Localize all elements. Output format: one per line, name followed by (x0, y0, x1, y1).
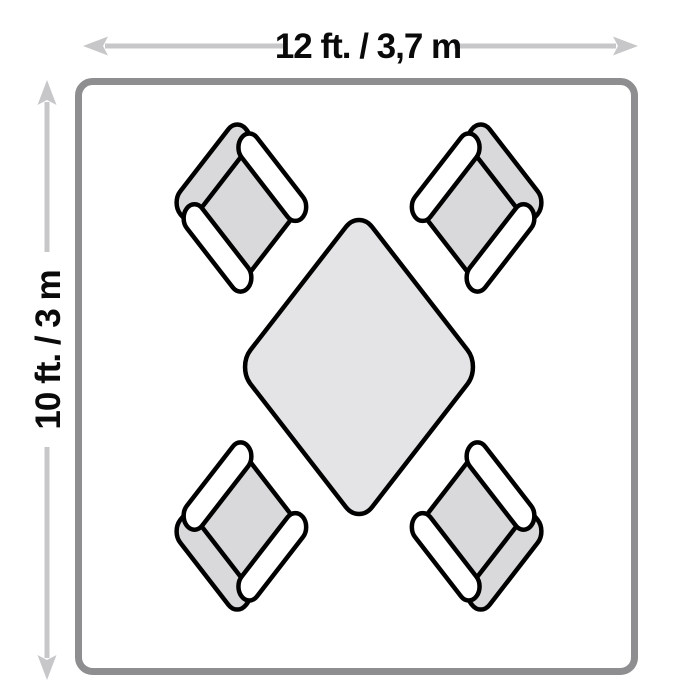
floor-plan-diagram: 12 ft. / 3,7 m 10 ft. / 3 m (0, 0, 700, 700)
height-dimension-label: 10 ft. / 3 m (29, 270, 68, 429)
arrowhead-down-icon (38, 655, 57, 680)
chair-top-left (169, 115, 310, 297)
chair-bottom-right (407, 437, 548, 619)
arrowhead-right-icon (613, 37, 638, 56)
arrowhead-left-icon (83, 37, 108, 56)
dining-table (237, 210, 480, 524)
table-top (237, 210, 480, 524)
width-dimension-label: 12 ft. / 3,7 m (275, 27, 461, 66)
chair-top-right (407, 115, 548, 297)
chair-bottom-left (169, 437, 310, 619)
floor-plan-canvas: 12 ft. / 3,7 m 10 ft. / 3 m (0, 0, 700, 700)
arrowhead-up-icon (38, 80, 57, 105)
